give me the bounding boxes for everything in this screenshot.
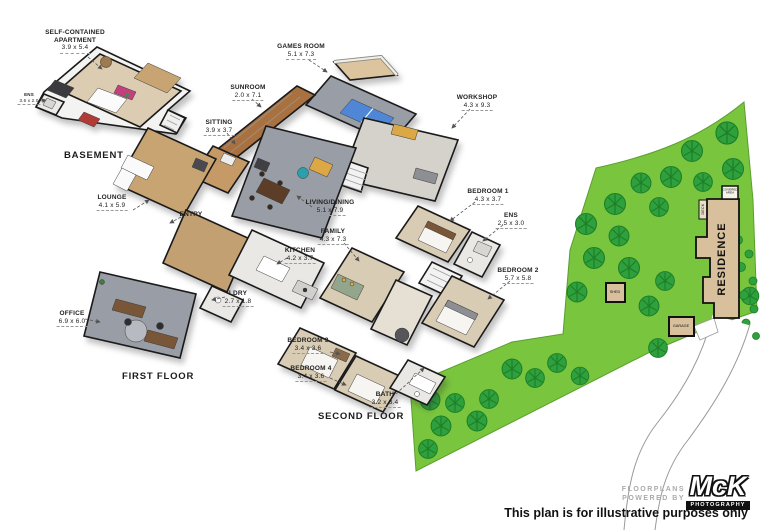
tree-icon xyxy=(584,248,605,269)
floorplan-page: SELF-CONTAINED APARTMENT3.9 x 5.4 ENS3.6… xyxy=(0,0,779,532)
stove xyxy=(303,288,307,292)
dining-chair xyxy=(268,205,273,210)
entry-hall xyxy=(163,210,250,292)
tree-icon xyxy=(619,258,640,279)
powered-by-text: FLOORPLANS POWERED BY xyxy=(622,486,685,503)
decor-item xyxy=(125,93,129,97)
deck-label: DECK xyxy=(701,204,705,215)
first-floor-title: FIRST FLOOR xyxy=(122,371,194,382)
tree-icon xyxy=(650,198,669,217)
tree-icon xyxy=(576,214,597,235)
tree-icon xyxy=(605,194,626,215)
cushion xyxy=(350,282,354,286)
callout-ens: ENS2.5 x 3.0 xyxy=(496,212,527,229)
residence-label: RESIDENCE xyxy=(716,222,728,295)
office-chair xyxy=(125,319,132,326)
callout-family: FAMILY4.3 x 7.3 xyxy=(318,228,349,245)
dining-chair xyxy=(250,196,255,201)
tree-icon xyxy=(431,416,451,436)
tree-icon xyxy=(548,354,567,373)
callout-bedroom-1: BEDROOM 14.3 x 3.7 xyxy=(467,188,508,205)
tree-icon xyxy=(571,367,589,385)
plant xyxy=(100,280,105,285)
second-floor-title: SECOND FLOOR xyxy=(318,411,404,422)
callout-workshop: WORKSHOP4.3 x 9.3 xyxy=(457,94,498,111)
sink xyxy=(415,392,420,397)
callout-basement-ens: ENS3.6 x 2.0 xyxy=(17,92,40,105)
callout-sunroom: SUNROOM2.0 x 7.1 xyxy=(230,84,265,101)
tree-icon xyxy=(480,390,499,409)
tree-icon xyxy=(723,159,744,180)
tree-icon xyxy=(502,359,522,379)
disclaimer-text: This plan is for illustrative purposes o… xyxy=(504,506,748,520)
basement-floorplan xyxy=(36,47,190,134)
callout-ldry: LDRY2.7 x 1.8 xyxy=(223,290,254,307)
callout-office: OFFICE6.9 x 6.0 xyxy=(57,310,88,327)
tree-icon xyxy=(649,339,668,358)
tree-icon xyxy=(682,141,703,162)
basement-title: BASEMENT xyxy=(64,150,124,161)
callout-entry: ENTRY xyxy=(180,211,203,219)
garage-label: GARAGE xyxy=(673,324,689,328)
spiral-stair xyxy=(395,328,409,342)
tree-icon xyxy=(567,282,587,302)
tree-icon xyxy=(694,173,713,192)
callout-bedroom-4: BEDROOM 43.4 x 3.6 xyxy=(290,365,331,382)
mck-logo: McK xyxy=(686,471,750,501)
callout-living-dining: LIVING/DINING5.1 x 7.9 xyxy=(306,199,355,216)
callout-sitting: SITTING3.9 x 3.7 xyxy=(204,119,235,136)
dining-chair xyxy=(260,172,265,177)
tree-icon xyxy=(661,167,682,188)
floorplan-illustration xyxy=(0,0,779,532)
callout-bath: BATH3.2 x 3.4 xyxy=(370,391,401,408)
tree-icon xyxy=(716,122,738,144)
toilet xyxy=(468,258,473,263)
tree-icon xyxy=(467,411,487,431)
ottoman xyxy=(298,168,309,179)
washer xyxy=(215,297,221,303)
office-chair xyxy=(157,323,164,330)
tree-icon xyxy=(631,173,651,193)
covered-area-label: COVERED AREA xyxy=(723,189,738,196)
callout-bedroom-2: BEDROOM 25.7 x 5.8 xyxy=(497,267,538,284)
shed-label: SHED xyxy=(610,290,621,294)
callout-lounge: LOUNGE4.1 x 5.9 xyxy=(97,194,128,211)
callout-apartment: SELF-CONTAINED APARTMENT3.9 x 5.4 xyxy=(45,29,105,54)
dining-chair xyxy=(278,181,283,186)
tree-icon xyxy=(526,369,545,388)
tree-icon xyxy=(446,394,465,413)
callout-kitchen: KITCHEN4.2 x 3.7 xyxy=(285,247,316,264)
tree-icon xyxy=(609,226,629,246)
callout-games-room: GAMES ROOM5.1 x 7.3 xyxy=(277,43,325,60)
tree-icon xyxy=(419,440,438,459)
cushion xyxy=(342,278,346,282)
round-chair xyxy=(101,57,112,68)
tree-icon xyxy=(656,272,675,291)
tree-icon xyxy=(639,296,659,316)
callout-bedroom-3: BEDROOM 33.4 x 3.6 xyxy=(287,337,328,354)
